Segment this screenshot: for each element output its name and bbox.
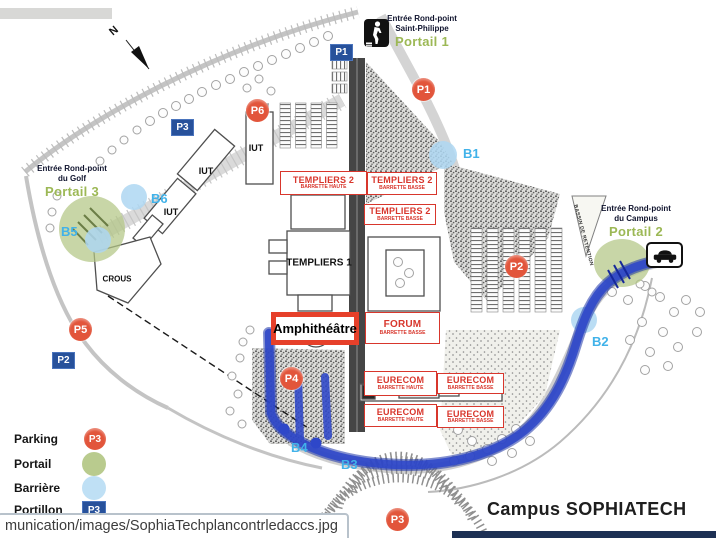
entrance-line1: Entrée Rond-point — [24, 164, 120, 174]
browser-status-url: munication/images/SophiaTechplancontrled… — [0, 513, 349, 538]
legend-row-barriere: Barrière — [14, 476, 106, 500]
campus-title: Campus SOPHIATECH — [487, 499, 687, 520]
box-templiers2-haute: TEMPLIERS 2 BARRETTE HAUTE — [280, 171, 367, 195]
barrier-label-b6: B6 — [151, 191, 168, 206]
parking-legend-icon: P3 — [84, 428, 106, 450]
parking-marker-p4: P4 — [280, 367, 303, 390]
box-templiers2-basse-1: TEMPLIERS 2 BARRETTE BASSE — [367, 172, 437, 195]
amphitheatre-box: Amphithéâtre — [271, 312, 359, 345]
campus-map-image[interactable]: N Entrée Rond-point Saint-Philippe Porta… — [0, 0, 716, 538]
scan-edge-strip — [0, 8, 112, 19]
parking-marker-p2: P2 — [505, 255, 528, 278]
building-label-crous: CROUS — [103, 275, 132, 284]
portillon-marker-p1: P1 — [330, 44, 353, 61]
bottom-edge-bar — [452, 531, 716, 538]
barrier-label-b5: B5 — [61, 224, 78, 239]
barrier-label-b1: B1 — [463, 146, 480, 161]
parking-marker-p5: P5 — [69, 318, 92, 341]
portillon-marker-p3: P3 — [171, 119, 194, 136]
portail-1-label: Portail 1 — [372, 34, 472, 50]
legend-row-parking: Parking P3 — [14, 428, 106, 450]
entrance-line1: Entrée Rond-point — [588, 204, 684, 214]
building-label-iut-3: IUT — [164, 207, 179, 217]
entrance-line2: Saint-Philippe — [372, 24, 472, 34]
entrance-line2: du Golf — [24, 174, 120, 184]
parking-marker-p1: P1 — [412, 78, 435, 101]
entrance-campus: Entrée Rond-point du Campus Portail 2 — [588, 204, 684, 240]
building-label-templiers1: TEMPLIERS 1 — [286, 258, 352, 269]
car-icon — [646, 242, 683, 268]
portail-2-label: Portail 2 — [588, 224, 684, 240]
box-eurecom-basse-2: EURECOM BARRETTE BASSE — [437, 406, 504, 428]
entrance-line1: Entrée Rond-point — [372, 14, 472, 24]
barrier-label-b3: B3 — [341, 457, 358, 472]
building-label-iut-1: IUT — [249, 143, 264, 153]
portillon-marker-p2: P2 — [52, 352, 75, 369]
entrance-golf: Entrée Rond-point du Golf Portail 3 — [24, 164, 120, 200]
barriere-legend-icon — [82, 476, 106, 500]
portail-legend-icon — [82, 452, 106, 476]
legend-row-portail: Portail — [14, 452, 106, 476]
parking-marker-p3: P3 — [386, 508, 409, 531]
box-forum: FORUM BARRETTE BASSE — [365, 312, 440, 344]
barrier-label-b2: B2 — [592, 334, 609, 349]
building-label-iut-2: IUT — [199, 166, 214, 176]
box-templiers2-basse-2: TEMPLIERS 2 BARRETTE BASSE — [364, 204, 436, 225]
entrance-saint-philippe: Entrée Rond-point Saint-Philippe Portail… — [372, 14, 472, 50]
portail-3-label: Portail 3 — [24, 184, 120, 200]
barrier-label-b4: B4 — [291, 440, 308, 455]
box-eurecom-haute-2: EURECOM BARRETTE HAUTE — [364, 404, 437, 427]
entrance-line2: du Campus — [588, 214, 684, 224]
box-eurecom-basse-1: EURECOM BARRETTE BASSE — [437, 373, 504, 394]
parking-marker-p6: P6 — [246, 99, 269, 122]
map-drawing — [0, 0, 716, 538]
box-eurecom-haute-1: EURECOM BARRETTE HAUTE — [364, 371, 437, 396]
